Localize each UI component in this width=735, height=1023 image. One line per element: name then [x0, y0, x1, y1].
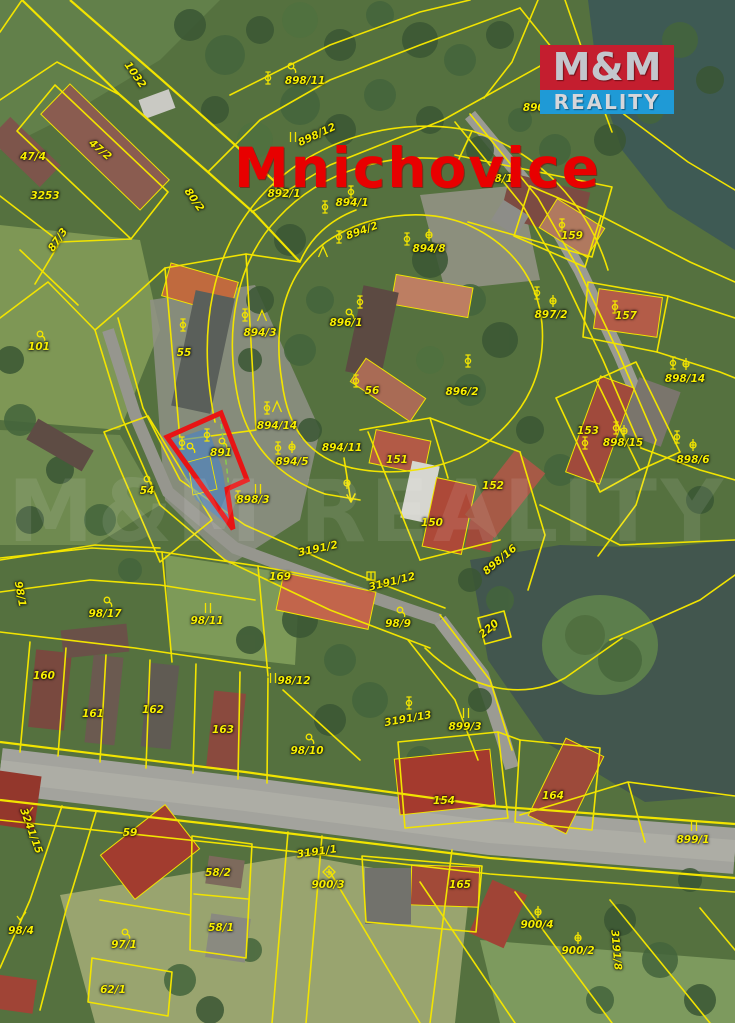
- mm-reality-logo: M&M REALITY: [540, 45, 674, 114]
- cadastral-map: M&M REALITY 103247/447/2325387/380/2898/…: [0, 0, 735, 1023]
- dot-symbol: [492, 627, 496, 631]
- logo-mm-text: M&M: [540, 45, 674, 90]
- logo-reality-text: REALITY: [540, 90, 674, 114]
- map-title: Mnichovice: [234, 136, 601, 200]
